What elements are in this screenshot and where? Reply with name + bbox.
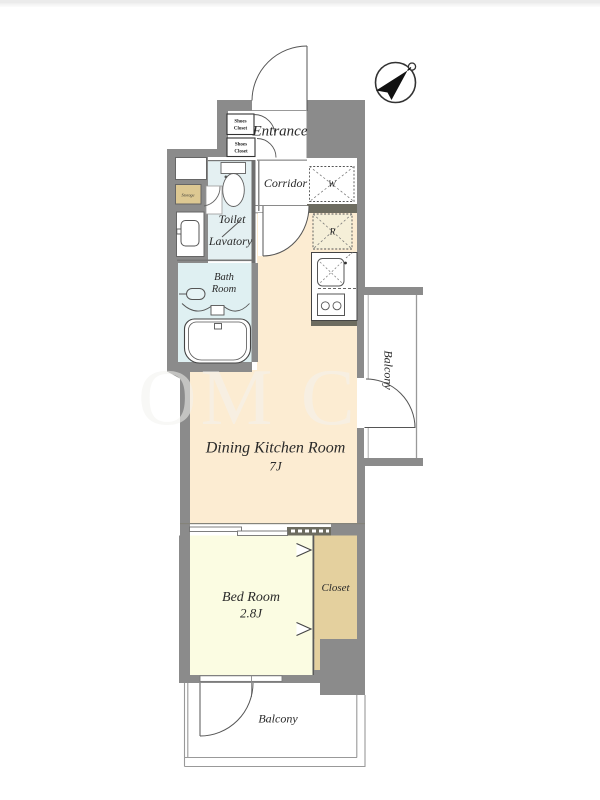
svg-text:R: R [329, 227, 336, 237]
svg-text:Dining Kitchen Room: Dining Kitchen Room [205, 440, 346, 457]
svg-text:Storage: Storage [181, 193, 194, 198]
svg-text:2.8J: 2.8J [240, 606, 263, 621]
svg-text:Entrance: Entrance [252, 124, 308, 140]
svg-text:Balcony: Balcony [258, 712, 298, 726]
svg-text:Shoes: Shoes [235, 143, 247, 148]
svg-text:OM C: OM C [138, 352, 359, 442]
svg-text:Closet: Closet [321, 582, 350, 594]
svg-text:Bath: Bath [214, 272, 234, 283]
svg-text:7J: 7J [269, 459, 283, 474]
svg-text:Balcony: Balcony [382, 350, 396, 390]
svg-text:Corridor: Corridor [264, 176, 308, 190]
svg-text:Closet: Closet [234, 127, 248, 132]
svg-text:Lavatory: Lavatory [208, 234, 253, 248]
svg-text:Closet: Closet [234, 150, 248, 155]
svg-text:Toilet: Toilet [219, 212, 247, 226]
svg-text:Room: Room [211, 284, 237, 295]
svg-text:Bed Room: Bed Room [222, 590, 280, 605]
svg-text:Shoes: Shoes [234, 120, 246, 125]
